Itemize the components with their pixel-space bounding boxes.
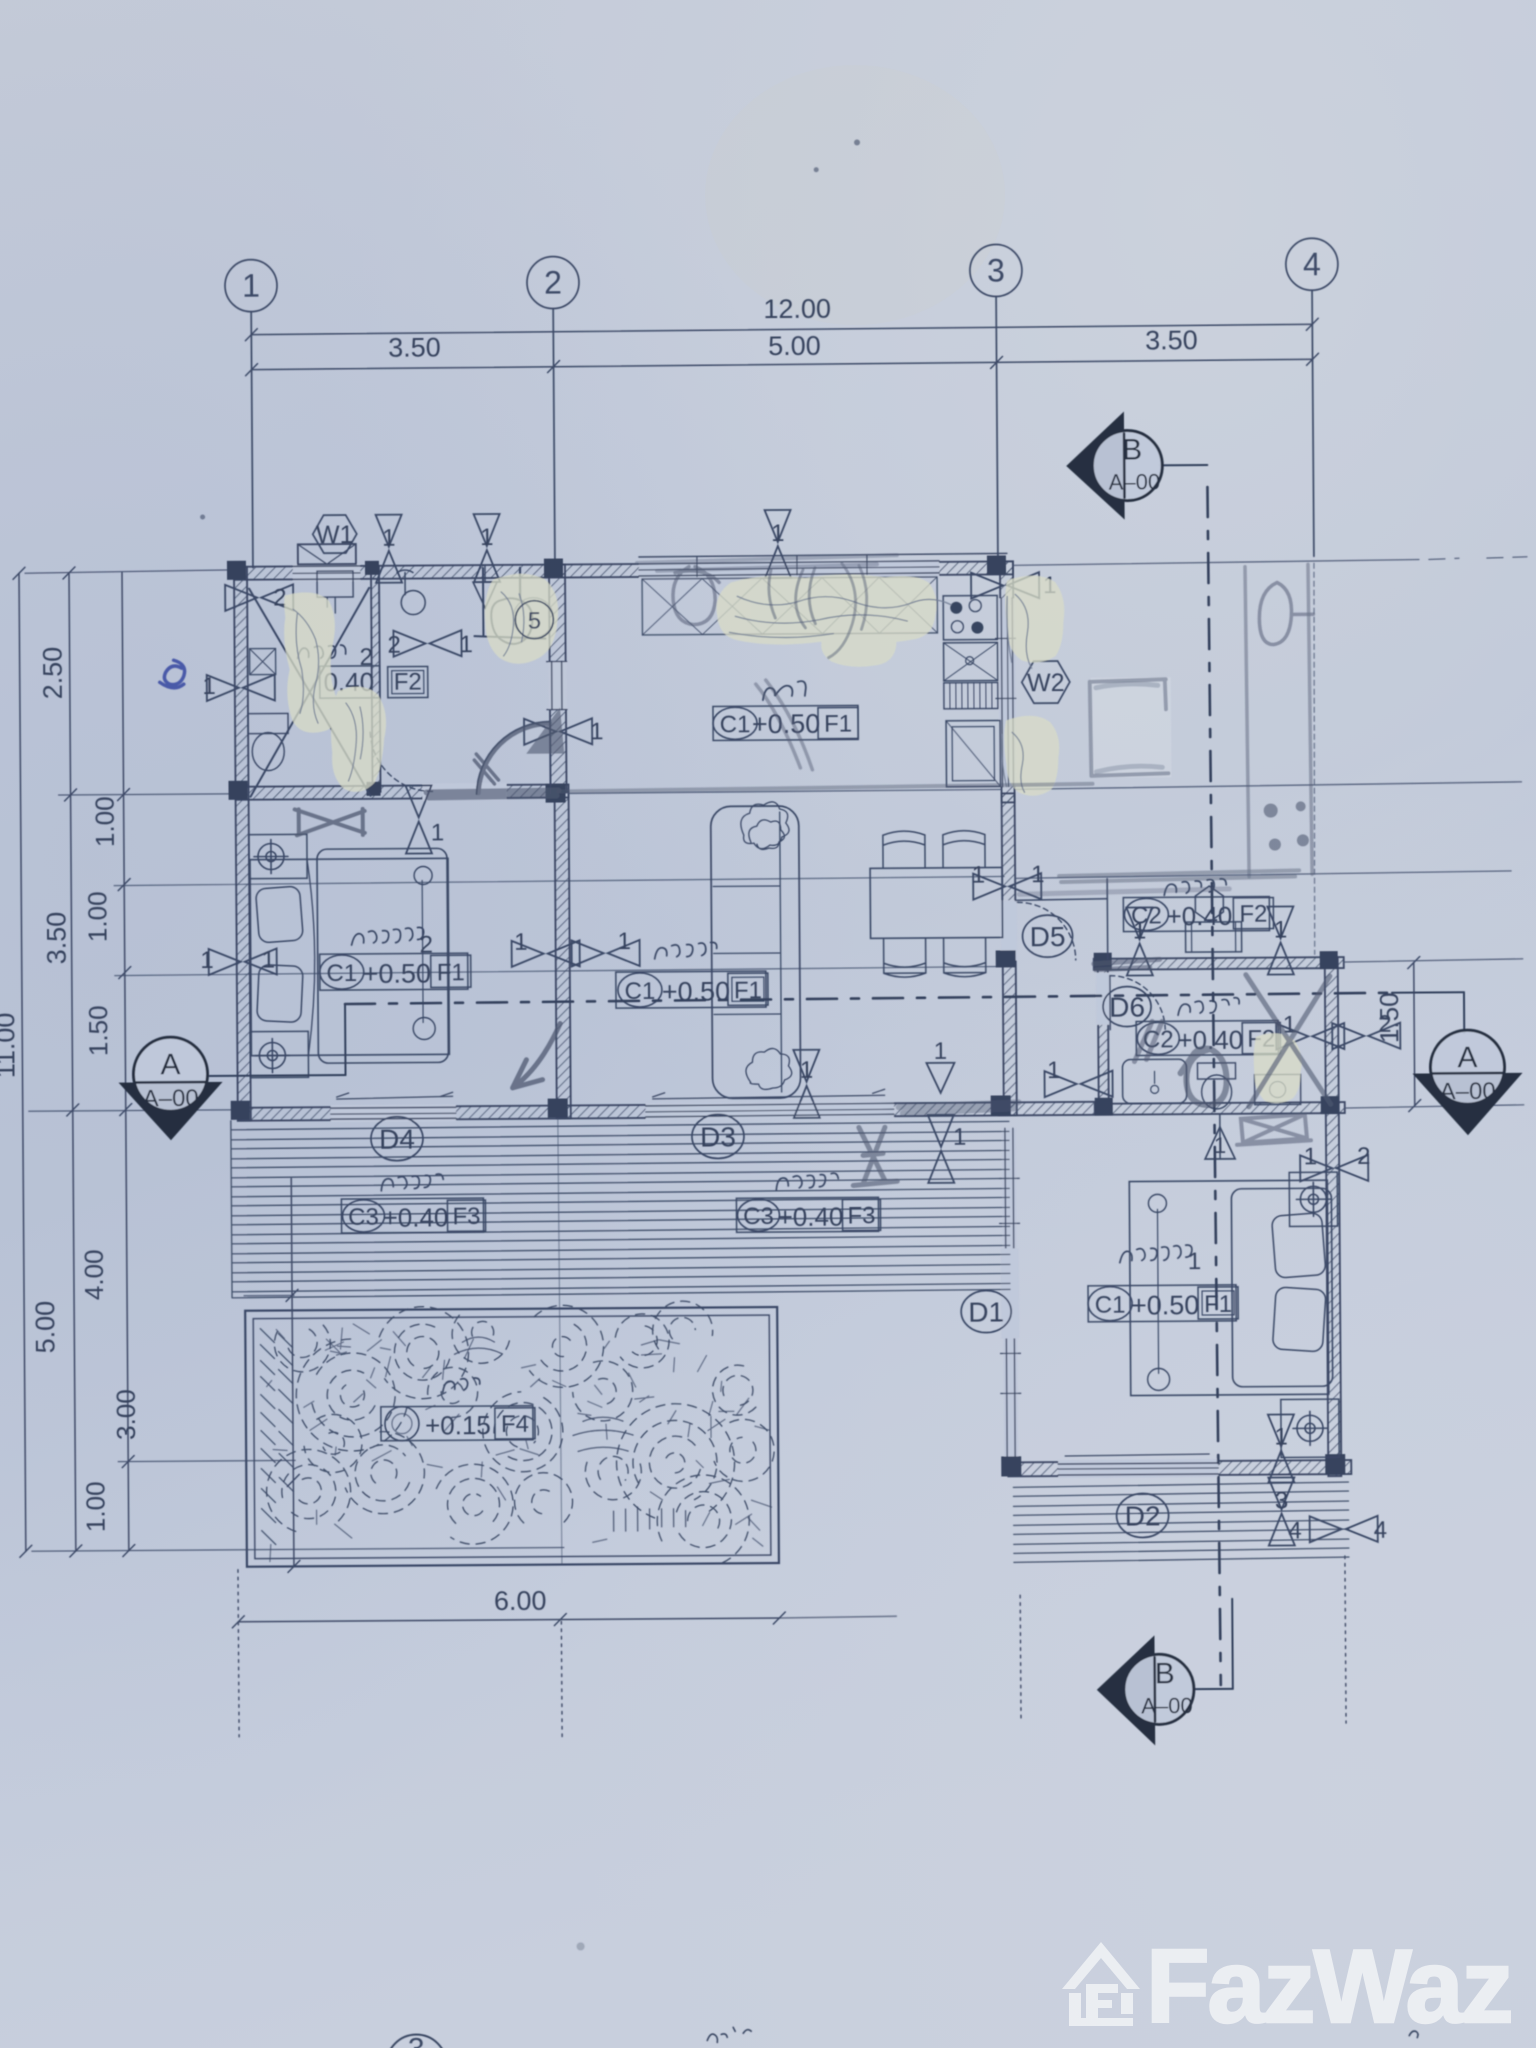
- svg-text:D4: D4: [379, 1124, 415, 1155]
- svg-text:5.00: 5.00: [30, 1301, 60, 1354]
- svg-text:1: 1: [262, 947, 276, 974]
- svg-text:3: 3: [408, 2033, 425, 2048]
- svg-text:4.00: 4.00: [79, 1249, 109, 1300]
- svg-text:1: 1: [1188, 1248, 1202, 1275]
- svg-text:1.00: 1.00: [90, 796, 120, 847]
- svg-text:D2: D2: [1125, 1500, 1161, 1531]
- svg-text:+0.15: +0.15: [425, 1410, 491, 1440]
- svg-text:1: 1: [459, 631, 473, 658]
- svg-text:1: 1: [431, 819, 445, 846]
- svg-text:+0.40: +0.40: [383, 1202, 449, 1232]
- svg-text:A: A: [160, 1048, 180, 1081]
- svg-text:C1: C1: [720, 711, 751, 738]
- svg-text:B: B: [1122, 433, 1142, 466]
- svg-text:C1: C1: [1095, 1292, 1126, 1319]
- svg-text:A–00: A–00: [143, 1085, 199, 1112]
- svg-text:1: 1: [953, 1124, 967, 1151]
- svg-text:F4: F4: [501, 1411, 529, 1438]
- svg-text:F1: F1: [437, 959, 465, 986]
- svg-text:1: 1: [1047, 1057, 1061, 1084]
- svg-text:1: 1: [771, 520, 785, 547]
- svg-text:3: 3: [987, 252, 1005, 288]
- svg-text:F2: F2: [394, 668, 422, 695]
- svg-text:+0.50: +0.50: [662, 976, 731, 1006]
- svg-text:1.50: 1.50: [83, 1005, 113, 1056]
- svg-text:3.00: 3.00: [111, 1389, 141, 1440]
- svg-text:1: 1: [800, 1057, 814, 1084]
- svg-text:+0.40: +0.40: [778, 1202, 844, 1232]
- svg-text:D1: D1: [968, 1296, 1004, 1327]
- svg-text:1: 1: [934, 1038, 948, 1065]
- svg-text:1: 1: [200, 947, 214, 974]
- svg-text:2: 2: [387, 632, 401, 659]
- svg-text:1: 1: [514, 929, 528, 956]
- svg-text:W2: W2: [1027, 669, 1065, 697]
- svg-text:1.00: 1.00: [82, 891, 112, 942]
- svg-text:12.00: 12.00: [763, 294, 831, 324]
- svg-text:1: 1: [382, 525, 396, 552]
- svg-text:5: 5: [528, 608, 542, 635]
- svg-text:1: 1: [480, 524, 494, 551]
- svg-text:5.00: 5.00: [768, 331, 821, 361]
- svg-text:4: 4: [1288, 1517, 1302, 1544]
- svg-text:D5: D5: [1030, 921, 1066, 952]
- svg-text:F3: F3: [847, 1202, 875, 1229]
- svg-text:3.50: 3.50: [1145, 325, 1198, 355]
- svg-text:+0.40: +0.40: [1166, 901, 1232, 931]
- svg-text:F1: F1: [1204, 1291, 1232, 1318]
- svg-text:1: 1: [1031, 861, 1045, 888]
- svg-text:1: 1: [202, 673, 216, 700]
- svg-text:A: A: [1457, 1041, 1477, 1074]
- svg-text:1: 1: [1133, 917, 1147, 944]
- svg-text:1: 1: [617, 928, 631, 955]
- svg-text:1: 1: [242, 268, 260, 304]
- svg-text:4: 4: [1374, 1517, 1388, 1544]
- svg-text:C3: C3: [743, 1203, 774, 1230]
- svg-text:F1: F1: [824, 710, 852, 737]
- svg-text:W1: W1: [316, 521, 354, 549]
- svg-text:F2: F2: [1239, 901, 1267, 928]
- svg-text:C1: C1: [326, 960, 357, 987]
- svg-text:F3: F3: [452, 1203, 480, 1230]
- svg-text:+0.50: +0.50: [1131, 1290, 1200, 1320]
- svg-text:FazWaz: FazWaz: [1146, 1929, 1512, 2045]
- svg-text:2: 2: [1357, 1143, 1371, 1170]
- svg-text:2.50: 2.50: [38, 647, 68, 700]
- svg-text:3.50: 3.50: [388, 332, 441, 362]
- svg-text:3: 3: [1275, 1487, 1289, 1514]
- svg-text:D3: D3: [700, 1121, 736, 1152]
- svg-text:4: 4: [1303, 246, 1321, 282]
- svg-text:1: 1: [1304, 1143, 1318, 1170]
- svg-text:C3: C3: [348, 1204, 379, 1231]
- svg-text:1: 1: [1274, 1423, 1288, 1450]
- svg-text:3.50: 3.50: [41, 912, 71, 965]
- svg-text:2: 2: [544, 265, 562, 301]
- svg-text:6.00: 6.00: [494, 1586, 547, 1616]
- svg-text:11.00: 11.00: [0, 1013, 21, 1079]
- svg-text:+0.50: +0.50: [363, 958, 432, 988]
- svg-text:1: 1: [1274, 916, 1288, 943]
- svg-text:1: 1: [590, 718, 604, 745]
- svg-text:1: 1: [972, 862, 986, 889]
- svg-text:A–00: A–00: [1109, 469, 1161, 494]
- svg-text:A–00: A–00: [1141, 1693, 1193, 1718]
- svg-text:B: B: [1155, 1657, 1175, 1690]
- svg-text:A–00: A–00: [1440, 1078, 1496, 1105]
- svg-text:2: 2: [1378, 1011, 1392, 1038]
- svg-text:2: 2: [420, 931, 434, 958]
- svg-text:1.00: 1.00: [80, 1481, 110, 1532]
